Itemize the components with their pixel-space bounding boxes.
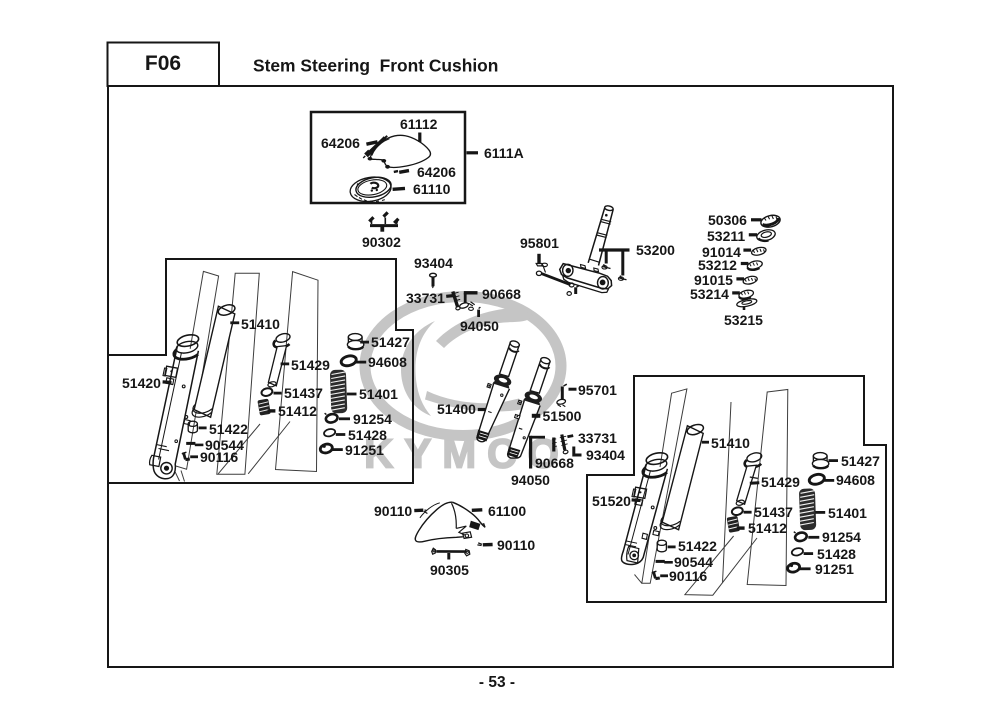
svg-text:61112: 61112 bbox=[400, 116, 438, 132]
svg-text:53211: 53211 bbox=[707, 228, 745, 244]
svg-text:93404: 93404 bbox=[414, 255, 453, 271]
svg-text:F06: F06 bbox=[145, 52, 181, 75]
svg-text:94050: 94050 bbox=[511, 472, 550, 488]
svg-text:33731: 33731 bbox=[578, 430, 617, 446]
svg-text:- 53 -: - 53 - bbox=[479, 674, 515, 691]
svg-text:61100: 61100 bbox=[488, 503, 526, 519]
svg-text:33731: 33731 bbox=[406, 290, 445, 306]
svg-text:51428: 51428 bbox=[817, 546, 856, 562]
svg-text:53212: 53212 bbox=[698, 257, 737, 273]
svg-text:51428: 51428 bbox=[348, 427, 387, 443]
svg-text:51412: 51412 bbox=[748, 520, 787, 536]
svg-text:51400: 51400 bbox=[437, 401, 476, 417]
svg-text:64206: 64206 bbox=[417, 164, 456, 180]
svg-text:51429: 51429 bbox=[291, 357, 330, 373]
svg-text:51401: 51401 bbox=[359, 386, 398, 402]
svg-text:51422: 51422 bbox=[209, 421, 248, 437]
svg-text:91254: 91254 bbox=[353, 411, 392, 427]
svg-text:91251: 91251 bbox=[345, 442, 384, 458]
svg-text:51412: 51412 bbox=[278, 403, 317, 419]
svg-text:91254: 91254 bbox=[822, 529, 861, 545]
svg-text:90668: 90668 bbox=[482, 286, 521, 302]
svg-text:53215: 53215 bbox=[724, 312, 763, 328]
svg-text:51422: 51422 bbox=[678, 538, 717, 554]
svg-text:51437: 51437 bbox=[754, 504, 793, 520]
svg-text:90116: 90116 bbox=[669, 568, 707, 584]
svg-text:53200: 53200 bbox=[636, 242, 675, 258]
svg-text:51500: 51500 bbox=[543, 408, 582, 424]
svg-text:51427: 51427 bbox=[841, 453, 880, 469]
svg-text:Stem Steering Front Cushion: Stem Steering Front Cushion bbox=[253, 56, 498, 76]
svg-text:93404: 93404 bbox=[586, 447, 625, 463]
svg-text:6111A: 6111A bbox=[484, 145, 524, 161]
svg-text:61110: 61110 bbox=[413, 181, 451, 197]
svg-text:90305: 90305 bbox=[430, 562, 469, 578]
svg-text:51429: 51429 bbox=[761, 474, 800, 490]
svg-text:90110: 90110 bbox=[374, 503, 412, 519]
svg-text:50306: 50306 bbox=[708, 212, 747, 228]
svg-text:51410: 51410 bbox=[711, 435, 750, 451]
svg-text:90668: 90668 bbox=[535, 455, 574, 471]
svg-text:94050: 94050 bbox=[460, 318, 499, 334]
svg-text:95801: 95801 bbox=[520, 235, 559, 251]
svg-text:51437: 51437 bbox=[284, 385, 323, 401]
svg-text:51401: 51401 bbox=[828, 505, 867, 521]
svg-text:51410: 51410 bbox=[241, 316, 280, 332]
svg-text:90110: 90110 bbox=[497, 537, 535, 553]
svg-text:95701: 95701 bbox=[578, 382, 617, 398]
svg-text:94608: 94608 bbox=[368, 354, 407, 370]
svg-text:51520: 51520 bbox=[592, 493, 631, 509]
svg-text:94608: 94608 bbox=[836, 472, 875, 488]
svg-text:90116: 90116 bbox=[200, 449, 238, 465]
svg-text:90302: 90302 bbox=[362, 234, 401, 250]
svg-text:64206: 64206 bbox=[321, 135, 360, 151]
svg-text:91251: 91251 bbox=[815, 561, 854, 577]
svg-text:51420: 51420 bbox=[122, 375, 161, 391]
svg-text:53214: 53214 bbox=[690, 286, 729, 302]
svg-text:51427: 51427 bbox=[371, 334, 410, 350]
